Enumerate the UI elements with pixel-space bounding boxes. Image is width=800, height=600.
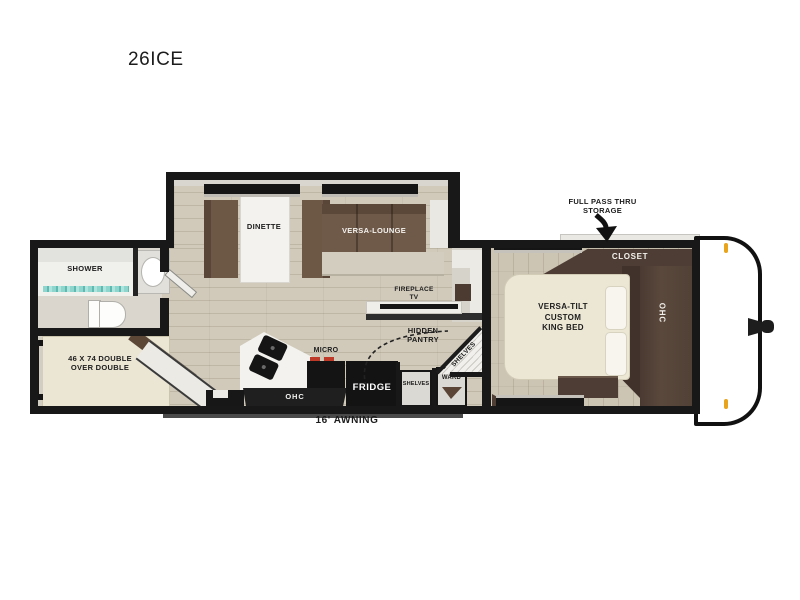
page-title: 26ICE <box>128 49 184 71</box>
storage-line2: STORAGE <box>545 207 660 216</box>
sofa-platform <box>322 252 444 276</box>
versa-lounge-label: VERSA-LOUNGE <box>328 227 420 236</box>
bunk-label: 46 X 74 DOUBLE OVER DOUBLE <box>50 355 150 373</box>
bathroom-wall-upper <box>160 248 169 272</box>
fridge-label: FRIDGE <box>353 382 392 393</box>
dinette-window <box>204 184 300 194</box>
closet-label: CLOSET <box>598 252 662 261</box>
slideout-left-wall <box>166 172 174 248</box>
lounge-window-sill <box>322 194 418 197</box>
shower-tile-strip <box>43 286 129 292</box>
step-tread <box>213 390 228 398</box>
bathroom-wall-lower <box>160 298 169 330</box>
dinette-bench-left <box>204 200 238 278</box>
dinette-table <box>240 195 290 283</box>
toilet-bowl <box>99 301 126 328</box>
bathroom-bottom-wall <box>30 328 169 336</box>
pillow <box>605 332 627 376</box>
dinette-window-sill <box>204 194 300 197</box>
awning-label: 16' AWNING <box>302 415 392 427</box>
floorplan-canvas: 26ICE DINETTE VERSA-LOUNGE <box>0 0 800 600</box>
entry-steps <box>206 390 244 407</box>
storage-annotation: FULL PASS THRU STORAGE <box>545 198 660 216</box>
ward-label: WARD <box>436 375 467 382</box>
kitchen-ohc-label: OHC <box>285 393 304 402</box>
pantry-label-line2: PANTRY <box>396 336 450 345</box>
bedroom-bottom-window-sill <box>496 395 584 398</box>
fireplace-label-line2: TV <box>384 294 444 302</box>
sink-drain <box>261 364 266 369</box>
tv-screen <box>380 304 458 309</box>
bed-label-line2: CUSTOM <box>516 313 610 324</box>
bedroom-ohc-wardrobe <box>640 266 692 406</box>
shower-label: SHOWER <box>52 265 118 274</box>
bed-label-line1: VERSA-TILT <box>516 302 610 313</box>
shelves-cabinet-label: SHELVES <box>399 381 433 388</box>
shower-wall <box>133 248 138 296</box>
storage-arrow-shaft <box>596 215 606 230</box>
fridge: FRIDGE <box>346 361 398 409</box>
shelves-cabinet <box>400 370 432 407</box>
lounge-window <box>322 184 418 194</box>
bedroom-divider-wall <box>482 248 491 406</box>
bench-back <box>204 200 211 278</box>
hidden-pantry-label: HIDDEN PANTRY <box>396 327 450 345</box>
bottom-wall <box>30 406 700 414</box>
bunk-window-inner <box>39 346 43 394</box>
clearance-marker-top <box>724 243 728 253</box>
micro-label: MICRO <box>306 347 346 355</box>
tv-console-shadow <box>366 313 483 320</box>
fireplace-unit <box>455 284 471 301</box>
top-wall-left <box>30 240 174 248</box>
clearance-marker-bottom <box>724 399 728 409</box>
top-wall-right <box>448 240 700 248</box>
bunk-label-line2: OVER DOUBLE <box>50 364 150 373</box>
sink-drain <box>270 345 275 350</box>
bedroom-top-window-sill <box>494 250 582 253</box>
front-cap <box>694 236 762 426</box>
king-bed-label: VERSA-TILT CUSTOM KING BED <box>516 302 610 334</box>
bed-label-line3: KING BED <box>516 323 610 334</box>
fireplace-tv-label: FIREPLACE TV <box>384 286 444 301</box>
rear-wall <box>30 240 38 414</box>
fireplace-label-line1: FIREPLACE <box>384 286 444 294</box>
sofa-back <box>322 204 426 214</box>
ward-door-mark <box>442 387 462 399</box>
slideout-right-inner-wall <box>430 200 448 248</box>
dinette-label: DINETTE <box>214 223 314 232</box>
slideout-right-wall <box>448 172 460 248</box>
slideout-top-wall <box>166 172 458 180</box>
hitch-ball-mount <box>761 320 774 333</box>
kitchen-ohc: OHC <box>243 388 347 407</box>
shower-ledge <box>38 248 133 262</box>
bedroom-ohc-label: OHC <box>657 303 666 323</box>
nook-counter-side <box>470 250 482 314</box>
front-interior-wall <box>692 240 700 414</box>
